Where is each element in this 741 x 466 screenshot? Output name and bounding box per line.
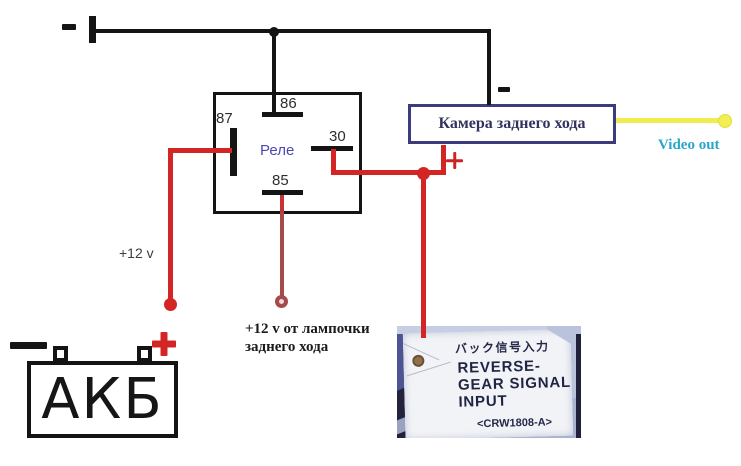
wire-relay-86-black (272, 31, 276, 114)
camera-label: Камера заднего хода (438, 115, 585, 133)
ground-minus-symbol (62, 24, 76, 30)
wire-camera-ground-black (487, 29, 491, 105)
wire-85-red-segment (280, 195, 284, 213)
tag-part-code: <CRW1808-A> (477, 416, 552, 430)
relay-pin-86-label: 86 (280, 95, 297, 112)
camera-box: Камера заднего хода (408, 104, 616, 144)
video-out-terminal-dot (718, 114, 732, 128)
battery-plus-symbol (152, 332, 176, 356)
wire-12v-terminal-dot (164, 298, 177, 311)
video-out-wire (616, 118, 724, 123)
lamp-supply-label-line1: +12 v от лампочки (245, 320, 370, 338)
battery-terminal-right (137, 346, 152, 362)
relay-label: Реле (260, 142, 294, 159)
relay-pin-86-bar (262, 112, 303, 117)
lamp-wire-terminal-ring (275, 295, 288, 308)
relay-pin-85-label: 85 (272, 172, 289, 189)
photo-edge-right (576, 334, 581, 438)
wire-reverse-signal-red (421, 173, 426, 338)
wire-12v-vertical-red (168, 148, 173, 306)
tag-text-line1: REVERSE- (457, 358, 541, 377)
camera-minus-symbol (498, 87, 510, 92)
lamp-supply-label: +12 v от лампочки заднего хода (245, 320, 370, 356)
lamp-supply-label-line2: заднего хода (245, 338, 370, 356)
tag-text-line2: GEAR SIGNAL (458, 374, 571, 394)
tag-text-line3: INPUT (458, 392, 507, 410)
camera-plus-symbol (446, 152, 463, 169)
relay-pin-87-label: 87 (216, 110, 233, 127)
battery-terminal-left (53, 346, 68, 362)
reverse-signal-photo: バック信号入力 REVERSE- GEAR SIGNAL INPUT <CRW1… (397, 326, 581, 438)
tag-japanese-text: バック信号入力 (455, 337, 550, 356)
battery-label: АКБ (41, 372, 163, 428)
battery-minus-symbol (10, 342, 47, 349)
wire-85-lamp-maroon (280, 212, 284, 298)
wiring-diagram: Камера заднего хода АКБ バック信号入力 REVERSE-… (0, 0, 741, 466)
signal-tag: バック信号入力 REVERSE- GEAR SIGNAL INPUT <CRW1… (403, 329, 574, 438)
wire-12v-to-87-red (170, 148, 232, 153)
ground-bus-wire (93, 29, 491, 33)
battery-box: АКБ (27, 361, 178, 438)
supply-12v-label: +12 v (119, 245, 154, 261)
tag-grommet (412, 355, 424, 367)
relay-pin-30-label: 30 (329, 128, 346, 145)
video-out-label: Video out (658, 137, 720, 154)
